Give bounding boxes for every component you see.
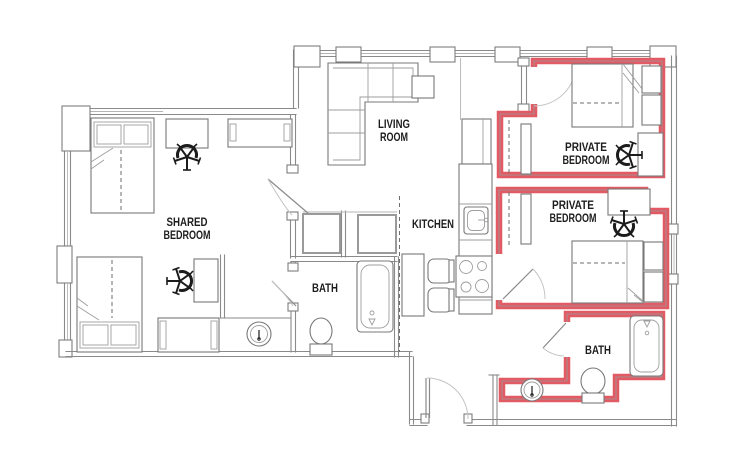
- kitchen-sink: [464, 207, 488, 234]
- side-table: [412, 76, 434, 98]
- bathtub: [357, 261, 393, 332]
- svg-text:PRIVATE: PRIVATE: [552, 200, 594, 212]
- dresser: [158, 318, 219, 352]
- door-jamb: [288, 263, 298, 271]
- svg-text:BEDROOM: BEDROOM: [563, 155, 610, 167]
- door-jamb: [287, 165, 298, 173]
- svg-text:KITCHEN: KITCHEN: [412, 219, 454, 231]
- entry-door: [426, 378, 468, 419]
- toilet: [581, 368, 605, 403]
- wall-pier: [59, 340, 72, 357]
- door-jamb: [287, 212, 298, 220]
- svg-text:LIVING: LIVING: [378, 119, 410, 131]
- private-bedroom-2-door: [503, 269, 545, 299]
- svg-text:BEDROOM: BEDROOM: [550, 213, 597, 225]
- window-mullion: [495, 47, 520, 62]
- stove: [456, 256, 492, 297]
- floor-plan: SHARED BEDROOM LIVING ROOM KITCHEN BATH …: [0, 0, 749, 454]
- refrigerator: [462, 119, 491, 164]
- chair: [428, 259, 454, 283]
- private-bedroom-1-door: [534, 64, 576, 106]
- wall-pier: [668, 224, 678, 234]
- closet-box: [358, 215, 396, 253]
- closet-box: [303, 214, 340, 253]
- svg-text:PRIVATE: PRIVATE: [565, 142, 607, 154]
- kitchen-label: KITCHEN: [412, 219, 454, 231]
- shared-bedroom-door: [268, 179, 309, 215]
- wall-pier: [57, 246, 72, 283]
- svg-text:BATH: BATH: [585, 345, 611, 357]
- door-jamb: [288, 303, 298, 311]
- door-jamb: [421, 414, 429, 423]
- shared-bath-label: BATH: [312, 283, 338, 295]
- floor-plan-drawing: SHARED BEDROOM LIVING ROOM KITCHEN BATH …: [0, 0, 749, 454]
- wall-pier: [668, 274, 678, 284]
- window-mullion: [430, 47, 455, 62]
- private-bath-door: [543, 323, 566, 356]
- bed: [572, 64, 661, 127]
- sofa: [328, 63, 418, 165]
- office-chair-icon: [167, 268, 193, 295]
- shared-bedroom-label: SHARED BEDROOM: [164, 217, 211, 242]
- dining-table: [402, 254, 424, 316]
- closet: [509, 120, 531, 176]
- svg-text:SHARED: SHARED: [167, 217, 208, 229]
- svg-text:ROOM: ROOM: [380, 132, 408, 144]
- closet: [228, 119, 292, 147]
- svg-text:BEDROOM: BEDROOM: [164, 230, 211, 242]
- sink: [247, 322, 271, 346]
- window-mullion: [294, 46, 320, 67]
- svg-text:BATH: BATH: [312, 283, 338, 295]
- door-jamb: [518, 58, 529, 66]
- shared-bath-door: [272, 281, 296, 306]
- bathtub: [630, 316, 663, 376]
- chair: [428, 288, 454, 312]
- private-bedroom-1-label: PRIVATE BEDROOM: [563, 142, 610, 167]
- toilet: [310, 318, 332, 355]
- private-bedroom-2-label: PRIVATE BEDROOM: [550, 200, 597, 225]
- bed: [572, 241, 663, 303]
- desk: [194, 259, 218, 302]
- bed: [91, 118, 154, 213]
- living-room-label: LIVING ROOM: [378, 119, 410, 144]
- bed: [77, 257, 142, 352]
- desk: [166, 119, 208, 148]
- private-bath-label: BATH: [585, 345, 611, 357]
- wall-pier: [62, 106, 90, 151]
- sink: [521, 379, 543, 401]
- window-mullion: [336, 47, 361, 62]
- closet: [509, 192, 531, 248]
- desk: [608, 189, 650, 215]
